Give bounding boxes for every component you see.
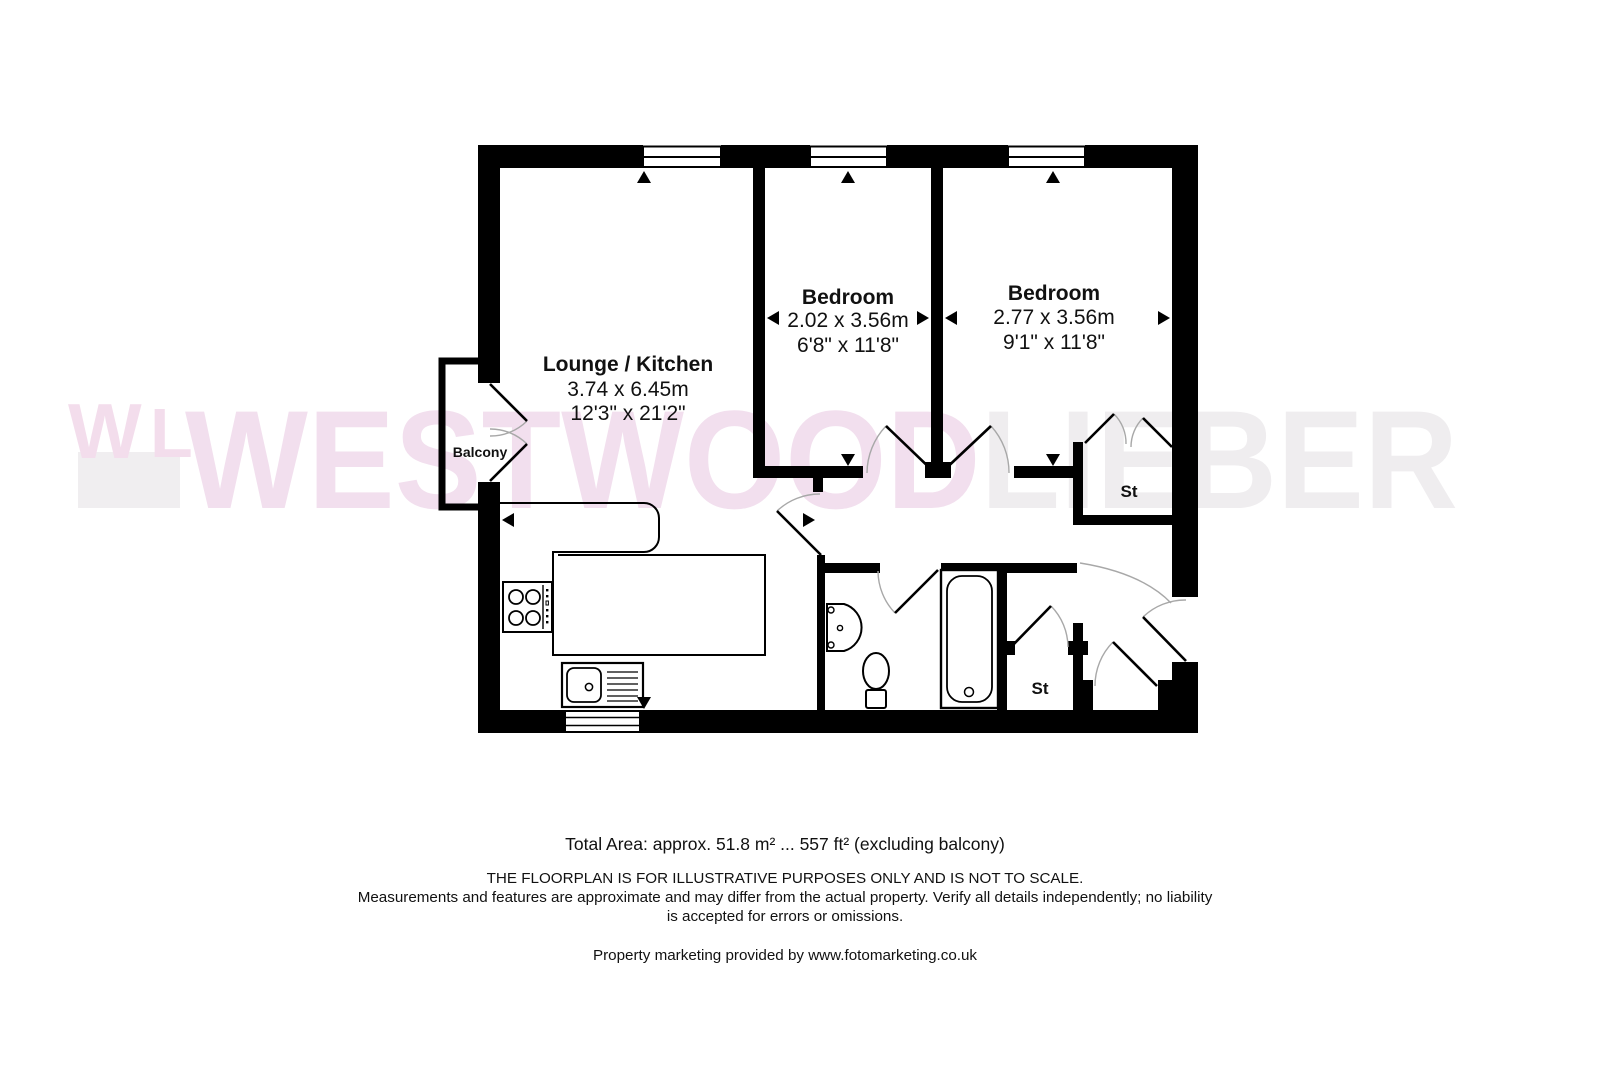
total-area-text: Total Area: approx. 51.8 m² ... 557 ft² …	[0, 834, 1570, 855]
disclaimer-line-3: is accepted for errors or omissions.	[0, 908, 1570, 925]
balcony-door-arc-bottom	[490, 429, 527, 444]
storage-bottom-door-leaf	[1010, 606, 1051, 648]
toilet	[863, 653, 889, 708]
marketing-credit-text: Property marketing provided by www.fotom…	[0, 947, 1570, 964]
storage-top-door-leaf-right	[1143, 418, 1172, 447]
bedroom-1-door-leaf	[886, 426, 936, 474]
hall-door-arc	[1080, 563, 1171, 603]
bathroom-door-leaf	[895, 570, 938, 613]
bedroom-1-imperial: 6'8" x 11'8"	[797, 334, 899, 357]
arrow-up-bedroom-2	[1046, 171, 1060, 183]
storage-top-door-leaf-left	[1085, 414, 1114, 443]
storage-bottom-label: St	[1032, 679, 1049, 698]
arrow-down-bedroom-2	[1046, 454, 1060, 466]
disclaimer-line-2: Measurements and features are approximat…	[0, 889, 1570, 906]
balcony-door-leaf-top	[490, 384, 527, 421]
balcony-outline	[442, 361, 478, 507]
window-bedroom-2	[1008, 145, 1085, 168]
arrow-right-bedroom-2	[1158, 311, 1170, 325]
bedroom-2-imperial: 9'1" x 11'8"	[1003, 331, 1105, 354]
storage-bottom-door-arc	[1051, 606, 1068, 647]
storage-top-door-arc-left	[1114, 414, 1126, 444]
disclaimer-line-1: THE FLOORPLAN IS FOR ILLUSTRATIVE PURPOS…	[0, 870, 1570, 887]
bedroom-1-name: Bedroom	[802, 286, 894, 309]
arrow-right-bedroom-1	[917, 311, 929, 325]
bedroom-2-door-arc	[991, 426, 1009, 473]
bedroom-2-door-leaf	[940, 426, 991, 474]
balcony-label: Balcony	[453, 444, 508, 460]
arrow-left-bedroom-1	[767, 311, 779, 325]
bedroom-2-metric: 2.77 x 3.56m	[993, 306, 1114, 329]
arrow-down-bedroom-1	[841, 454, 855, 466]
entry-door-arc	[1143, 600, 1186, 617]
balcony-door-arc-top	[490, 421, 527, 436]
entry-inner-door-arc	[1095, 642, 1113, 686]
hob	[503, 582, 552, 632]
entry-door-leaf	[1143, 617, 1186, 661]
arrow-up-bedroom-1	[841, 171, 855, 183]
bath	[941, 570, 998, 708]
lounge-kitchen-imperial: 12'3" x 21'2"	[570, 402, 685, 425]
window-lounge	[643, 145, 721, 168]
arrow-right-lounge	[803, 513, 815, 527]
bedroom-1-door-arc	[867, 426, 886, 473]
bathroom-door-arc	[878, 571, 895, 613]
storage-top-label: St	[1121, 482, 1138, 501]
lounge-door-leaf	[777, 511, 821, 555]
room-labels: Lounge / Kitchen 3.74 x 6.45m 12'3" x 21…	[453, 282, 1138, 698]
bedroom-2-name: Bedroom	[1008, 282, 1100, 305]
window-bedroom-1	[810, 145, 887, 168]
arrow-left-lounge	[502, 513, 514, 527]
kitchen-sink	[562, 663, 643, 707]
lounge-door-arc	[777, 494, 820, 511]
window-kitchen	[565, 710, 640, 733]
floorplan-page: W L WESTWOODLIEBER	[0, 0, 1620, 1080]
entry-inner-door-leaf	[1113, 642, 1157, 686]
bedroom-1-metric: 2.02 x 3.56m	[787, 309, 908, 332]
bathroom-basin	[827, 604, 862, 651]
lounge-kitchen-name: Lounge / Kitchen	[543, 353, 713, 376]
storage-top-door-arc-right	[1131, 418, 1143, 447]
arrow-up-lounge	[637, 171, 651, 183]
arrow-left-bedroom-2	[945, 311, 957, 325]
lounge-kitchen-metric: 3.74 x 6.45m	[567, 378, 688, 401]
